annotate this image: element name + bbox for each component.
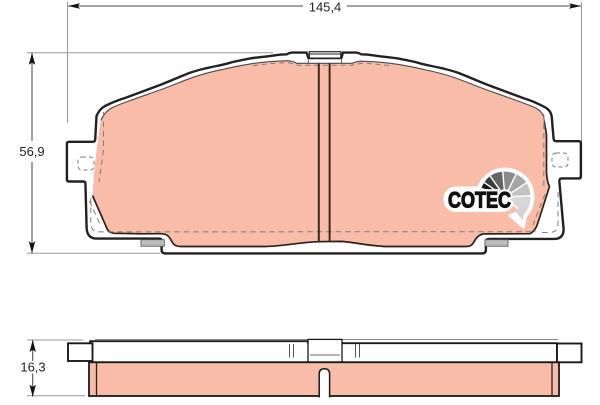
svg-text:145,4: 145,4 (309, 0, 342, 15)
svg-text:COTEC: COTEC (448, 188, 511, 213)
svg-text:16,3: 16,3 (20, 360, 45, 375)
svg-text:56,9: 56,9 (19, 144, 44, 159)
